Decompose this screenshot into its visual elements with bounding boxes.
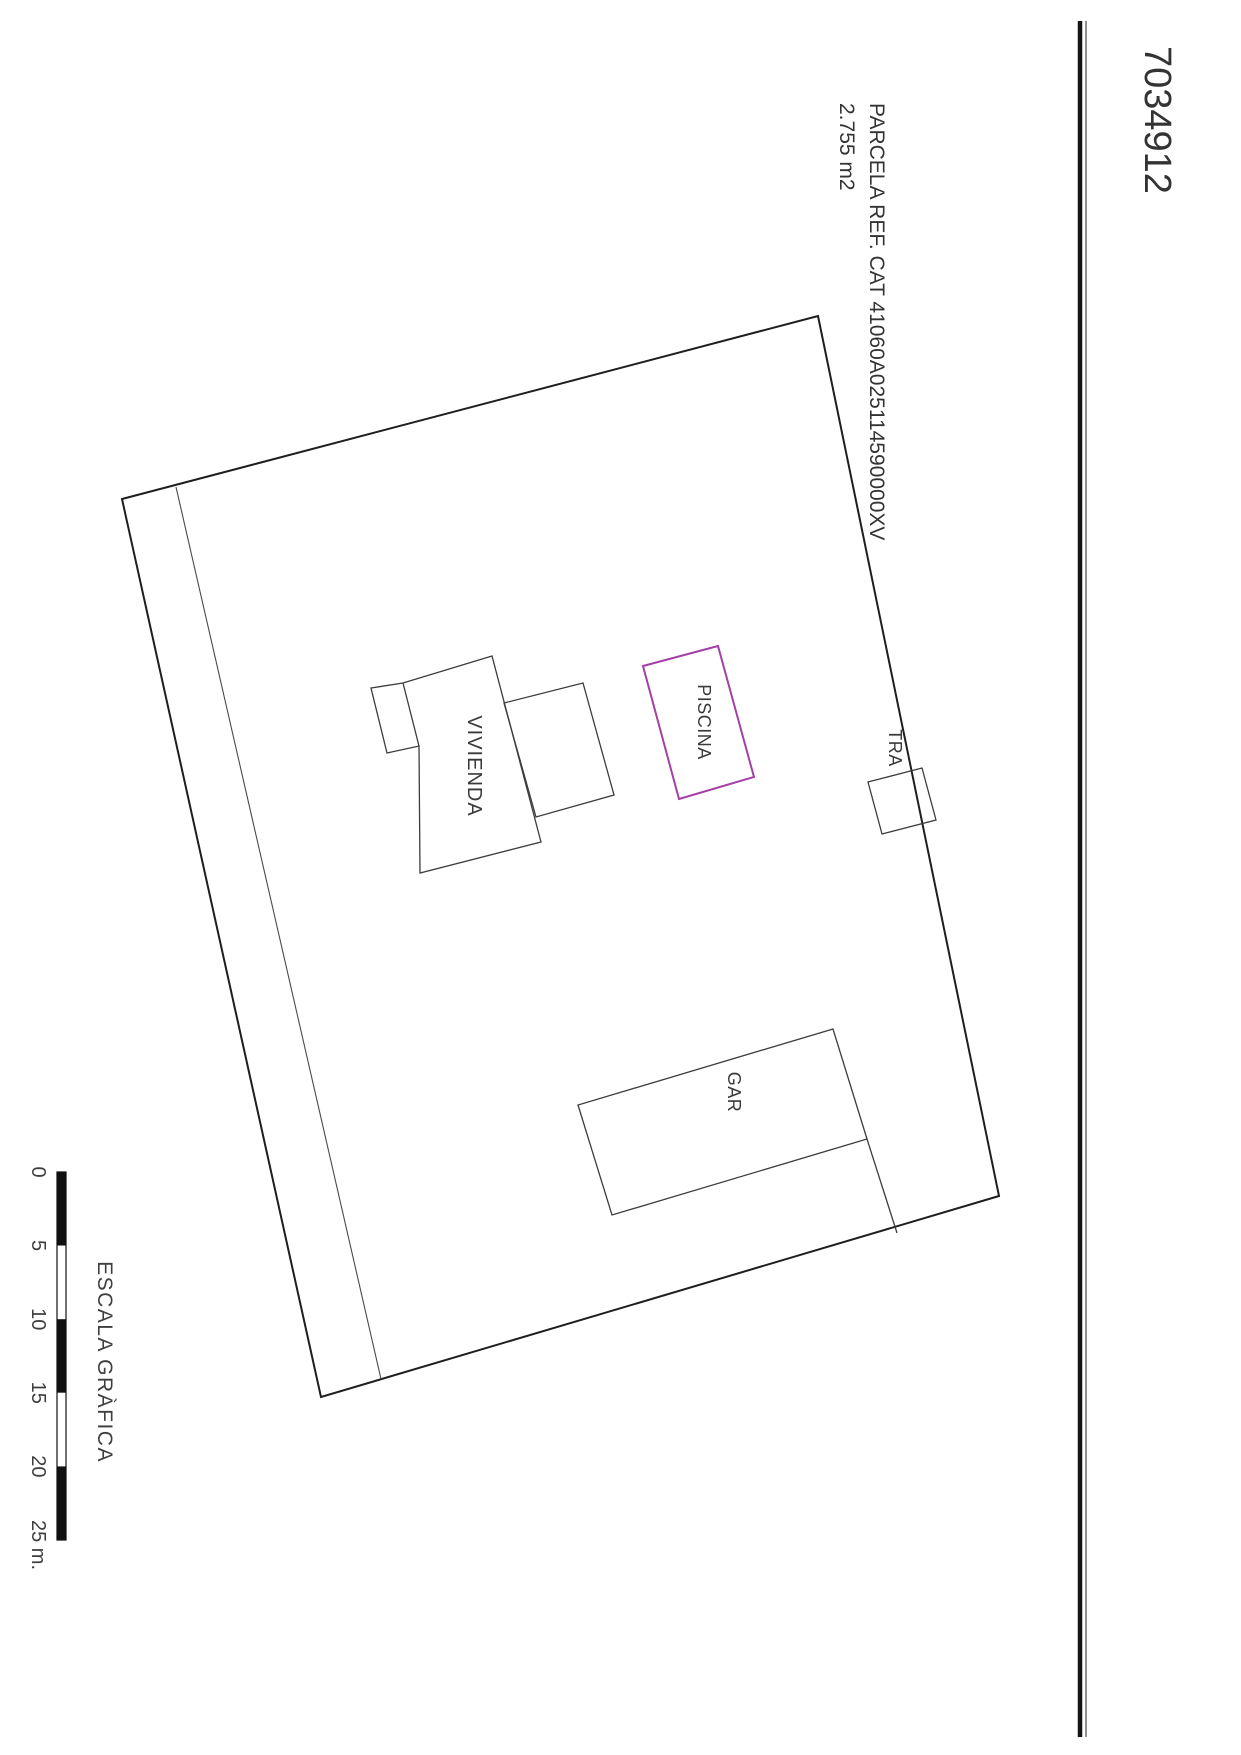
tra-outline bbox=[868, 768, 936, 834]
scale-tick-0: 0 bbox=[27, 1166, 49, 1177]
porch-outline bbox=[504, 683, 614, 817]
gar-boundary-connector bbox=[867, 1139, 897, 1233]
scale-bar-segment-black-2 bbox=[57, 1319, 66, 1393]
vivienda-annex-divider bbox=[403, 683, 419, 746]
scale-bar-segment-white-1 bbox=[57, 1246, 66, 1320]
scale-bar-segment-white-2 bbox=[57, 1393, 66, 1467]
vivienda-label: VIVIENDA bbox=[463, 715, 485, 816]
cadastral-plan-page: 7034912 PARCELA REF. CAT 41060A025114590… bbox=[0, 0, 1241, 1755]
gar-outline bbox=[578, 1029, 867, 1215]
gar-label: GAR bbox=[724, 1072, 744, 1113]
parcel-inner-strip-line bbox=[176, 487, 381, 1379]
vivienda-outline bbox=[371, 656, 541, 873]
parcel-ref: PARCELA REF. CAT 41060A025114590000XV bbox=[865, 103, 888, 540]
scale-tick-10: 10 bbox=[27, 1308, 49, 1330]
piscina-label: PISCINA bbox=[694, 684, 714, 760]
scale-bar-segment-black-1 bbox=[57, 1172, 66, 1246]
sheet-number: 7034912 bbox=[1136, 46, 1178, 194]
parcel-area: 2.755 m2 bbox=[835, 103, 858, 191]
scale-tick-20: 20 bbox=[27, 1455, 49, 1477]
scale-title: ESCALA GRÀFICA bbox=[93, 1261, 116, 1463]
scale-tick-25: 25 m. bbox=[27, 1520, 49, 1570]
plan-canvas: 7034912 PARCELA REF. CAT 41060A025114590… bbox=[0, 0, 1241, 1755]
scale-tick-5: 5 bbox=[27, 1240, 49, 1251]
scale-bar bbox=[57, 1172, 66, 1540]
tra-label: TRA bbox=[885, 729, 905, 767]
scale-bar-segment-black-3 bbox=[57, 1466, 66, 1540]
scale-tick-15: 15 bbox=[27, 1382, 49, 1404]
